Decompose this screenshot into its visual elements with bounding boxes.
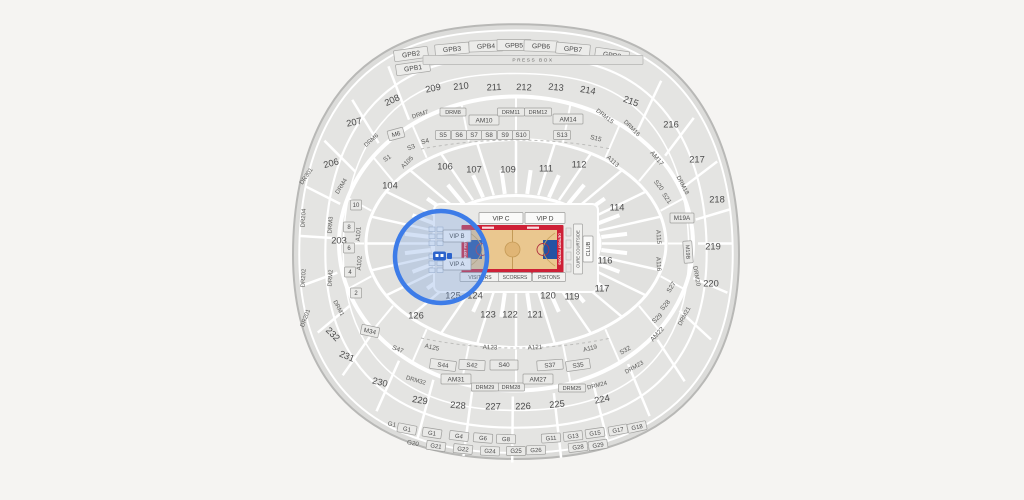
vip-club[interactable]: CLUB	[583, 236, 593, 262]
label-text: DRM2	[328, 269, 335, 287]
label-text: 106	[437, 161, 453, 171]
label-text: S37	[544, 362, 556, 370]
label-text: DRM12	[529, 110, 548, 116]
label-text: VIP D	[536, 215, 553, 222]
label-text: 121	[527, 309, 543, 319]
selection-highlight-group	[395, 211, 487, 303]
label-text: 126	[408, 310, 424, 320]
section-218[interactable]: 218	[709, 194, 725, 204]
vip-vip-d[interactable]: VIP D	[525, 213, 565, 224]
label-text: GPB6	[532, 43, 551, 51]
label-text: A115	[654, 230, 662, 245]
court-ad-text-right	[527, 227, 539, 229]
section-104[interactable]: 104	[382, 180, 398, 190]
section-213[interactable]: 213	[548, 81, 564, 93]
court-ad-text-left	[482, 227, 494, 229]
section-107[interactable]: 107	[466, 164, 482, 174]
label-text: G11	[545, 436, 557, 443]
area-am14[interactable]: AM14	[553, 114, 583, 124]
suite-gpb6[interactable]: GPB6	[524, 40, 558, 52]
area-g6[interactable]: G6	[473, 433, 493, 444]
label-text: 122	[502, 309, 518, 319]
area-drm25[interactable]: DRM25	[559, 384, 586, 392]
label-text: VIP C	[492, 215, 509, 222]
section-122[interactable]: 122	[502, 309, 518, 319]
floor-pistons: PISTONS	[533, 273, 566, 282]
label-text: 112	[572, 159, 587, 169]
area-g22[interactable]: G22	[453, 444, 473, 455]
area-drm28[interactable]: DRM28	[498, 383, 525, 391]
floor-cure-courtside[interactable]: CURE COURTSIDE	[574, 224, 583, 274]
label-text: AM10	[476, 117, 493, 124]
label-text: 228	[450, 400, 466, 411]
label-text: DRM25	[563, 386, 582, 392]
label-text: S7	[470, 132, 478, 139]
label-text: A123	[482, 344, 497, 352]
label-text: A116	[654, 257, 662, 272]
area-a101[interactable]: A101	[355, 226, 363, 242]
section-123[interactable]: 123	[480, 309, 496, 319]
label-text: A121	[528, 344, 543, 352]
label-text: S40	[498, 362, 510, 369]
area-drm29[interactable]: DRM29	[472, 383, 499, 391]
section-126[interactable]: 126	[408, 310, 424, 320]
label-text: AM14	[560, 116, 577, 123]
section-112[interactable]: 112	[572, 159, 587, 169]
area-g4[interactable]: G4	[449, 430, 469, 441]
section-225[interactable]: 225	[549, 398, 565, 410]
section-119[interactable]: 119	[565, 291, 580, 301]
area-am27[interactable]: AM27	[523, 374, 553, 384]
label-text: S5	[439, 132, 447, 139]
label-text: M19A	[674, 215, 691, 222]
label-text: S6	[455, 132, 463, 139]
label-text: 218	[709, 194, 725, 204]
label-text: DRM8	[445, 110, 461, 116]
floor-scorers: SCORERS	[499, 273, 532, 282]
label-text: CURE COURTSIDE	[575, 230, 580, 268]
vip-vip-c[interactable]: VIP C	[479, 213, 523, 224]
center-circle	[505, 242, 520, 257]
area-am10[interactable]: AM10	[469, 115, 499, 125]
label-text: GPB5	[505, 42, 523, 49]
area-g25[interactable]: G25	[507, 447, 526, 456]
area-s5[interactable]: S5	[436, 131, 451, 140]
area-g24[interactable]: G24	[480, 446, 499, 456]
seat-map-page: GPB2GPB3GPB4GPB5GPB6GPB7GPB8GPB1PRESS BO…	[0, 0, 1024, 500]
label-text: GPB4	[477, 43, 496, 51]
area-a116[interactable]: A116	[654, 257, 662, 272]
label-text: 116	[598, 255, 613, 265]
label-text: S10	[515, 132, 527, 139]
section-109[interactable]: 109	[500, 164, 516, 174]
section-219[interactable]: 219	[705, 241, 721, 251]
label-text: 114	[610, 202, 625, 212]
label-text: PISTONS	[538, 275, 561, 281]
section-228[interactable]: 228	[450, 400, 466, 411]
section-211[interactable]: 211	[486, 82, 501, 93]
label-text: 117	[595, 283, 610, 293]
label-text: 104	[382, 180, 398, 190]
label-text: G13	[567, 433, 580, 440]
area-drm11[interactable]: DRM11	[498, 108, 525, 116]
label-text: A102	[356, 255, 364, 271]
section-114[interactable]: 114	[610, 202, 625, 212]
label-text: 227	[485, 401, 501, 411]
label-text: 111	[539, 163, 553, 173]
label-text: S42	[466, 362, 478, 370]
label-text: 217	[689, 154, 705, 164]
section-106[interactable]: 106	[437, 161, 453, 171]
label-text: DRM28	[502, 385, 521, 391]
label-text: 120	[540, 290, 556, 300]
label-text: DRM29	[476, 385, 495, 391]
area-2[interactable]: 2	[351, 288, 362, 298]
area-8[interactable]: 8	[344, 222, 355, 232]
area-press-box: PRESS BOX	[423, 56, 643, 65]
court-detroit-pistons: DETROIT PISTONS	[557, 233, 561, 265]
label-text: G26	[530, 448, 542, 454]
area-a102[interactable]: A102	[356, 255, 364, 271]
label-text: S8	[485, 132, 493, 139]
area-g13[interactable]: G13	[563, 431, 583, 442]
section-217[interactable]: 217	[689, 154, 705, 164]
section-227[interactable]: 227	[485, 401, 501, 411]
area-s6[interactable]: S6	[452, 131, 467, 140]
section-210[interactable]: 210	[453, 80, 469, 92]
area-am31[interactable]: AM31	[441, 374, 471, 384]
area-drm12[interactable]: DRM12	[525, 108, 552, 116]
section-111[interactable]: 111	[539, 163, 553, 173]
area-drm8[interactable]: DRM8	[440, 108, 466, 116]
label-text: DETROIT PISTONS	[557, 233, 561, 265]
label-text: 220	[703, 278, 719, 288]
area-m19a[interactable]: M19A	[670, 213, 694, 223]
area-g8[interactable]: G8	[496, 434, 515, 444]
label-text: M19B	[684, 245, 691, 260]
label-text: AM27	[530, 376, 547, 383]
label-text: SCORERS	[503, 275, 528, 281]
label-text: 225	[549, 398, 565, 410]
label-text: 219	[705, 241, 721, 251]
area-s7[interactable]: S7	[467, 131, 482, 140]
area-g28[interactable]: G28	[568, 441, 588, 452]
label-text: G4	[455, 434, 464, 441]
label-text: G20	[406, 439, 419, 448]
area-s13[interactable]: S13	[554, 131, 571, 140]
label-text: 213	[548, 81, 564, 93]
label-text: 107	[466, 164, 482, 174]
label-text: G8	[502, 437, 511, 443]
area-s37[interactable]: S37	[537, 359, 564, 371]
section-226[interactable]: 226	[515, 401, 531, 412]
area-s40[interactable]: S40	[490, 360, 518, 370]
label-text: 210	[453, 80, 469, 92]
label-text: 211	[486, 82, 501, 93]
area-s9[interactable]: S9	[498, 131, 513, 140]
area-drm2[interactable]: DRM2	[328, 269, 335, 287]
label-text: A101	[355, 226, 363, 242]
label-text: S9	[501, 132, 509, 139]
section-220[interactable]: 220	[703, 278, 719, 288]
area-6[interactable]: 6	[344, 243, 355, 253]
label-text: G22	[457, 447, 470, 454]
section-117[interactable]: 117	[595, 283, 610, 293]
area-s10[interactable]: S10	[513, 131, 530, 140]
area-g20[interactable]: G20	[406, 439, 419, 448]
area-drm3[interactable]: DRM3	[328, 216, 335, 234]
area-a115[interactable]: A115	[654, 230, 662, 245]
area-4[interactable]: 4	[345, 267, 356, 277]
label-text: DRM3	[328, 216, 335, 234]
label-text: AM31	[448, 376, 465, 383]
label-text: 123	[480, 309, 496, 319]
section-120[interactable]: 120	[540, 290, 556, 300]
label-text: CLUB	[586, 241, 592, 256]
label-text: 226	[515, 401, 531, 412]
section-216[interactable]: 216	[663, 119, 679, 129]
section-121[interactable]: 121	[527, 309, 543, 319]
label-text: G6	[479, 436, 488, 443]
label-text: S13	[556, 132, 568, 139]
area-s42[interactable]: S42	[459, 359, 485, 370]
area-g26[interactable]: G26	[526, 445, 545, 455]
area-g11[interactable]: G11	[541, 433, 561, 443]
label-text: 212	[516, 82, 532, 93]
area-10[interactable]: 10	[351, 200, 362, 210]
label-text: 10	[353, 203, 360, 209]
label-text: G24	[484, 449, 496, 456]
label-text: DRM11	[502, 110, 520, 116]
arena-seat-map: GPB2GPB3GPB4GPB5GPB6GPB7GPB8GPB1PRESS BO…	[0, 0, 1024, 500]
label-text: 216	[663, 119, 679, 129]
area-m19b[interactable]: M19B	[683, 241, 694, 264]
label-text: G25	[510, 449, 522, 455]
section-116[interactable]: 116	[598, 255, 613, 265]
label-text: S44	[437, 362, 449, 370]
area-a121[interactable]: A121	[528, 344, 543, 352]
area-a123[interactable]: A123	[482, 344, 497, 352]
area-s8[interactable]: S8	[482, 131, 497, 140]
section-212[interactable]: 212	[516, 82, 532, 93]
label-text: 109	[500, 164, 516, 174]
label-text: 119	[565, 291, 580, 301]
label-text: PRESS BOX	[512, 58, 553, 64]
